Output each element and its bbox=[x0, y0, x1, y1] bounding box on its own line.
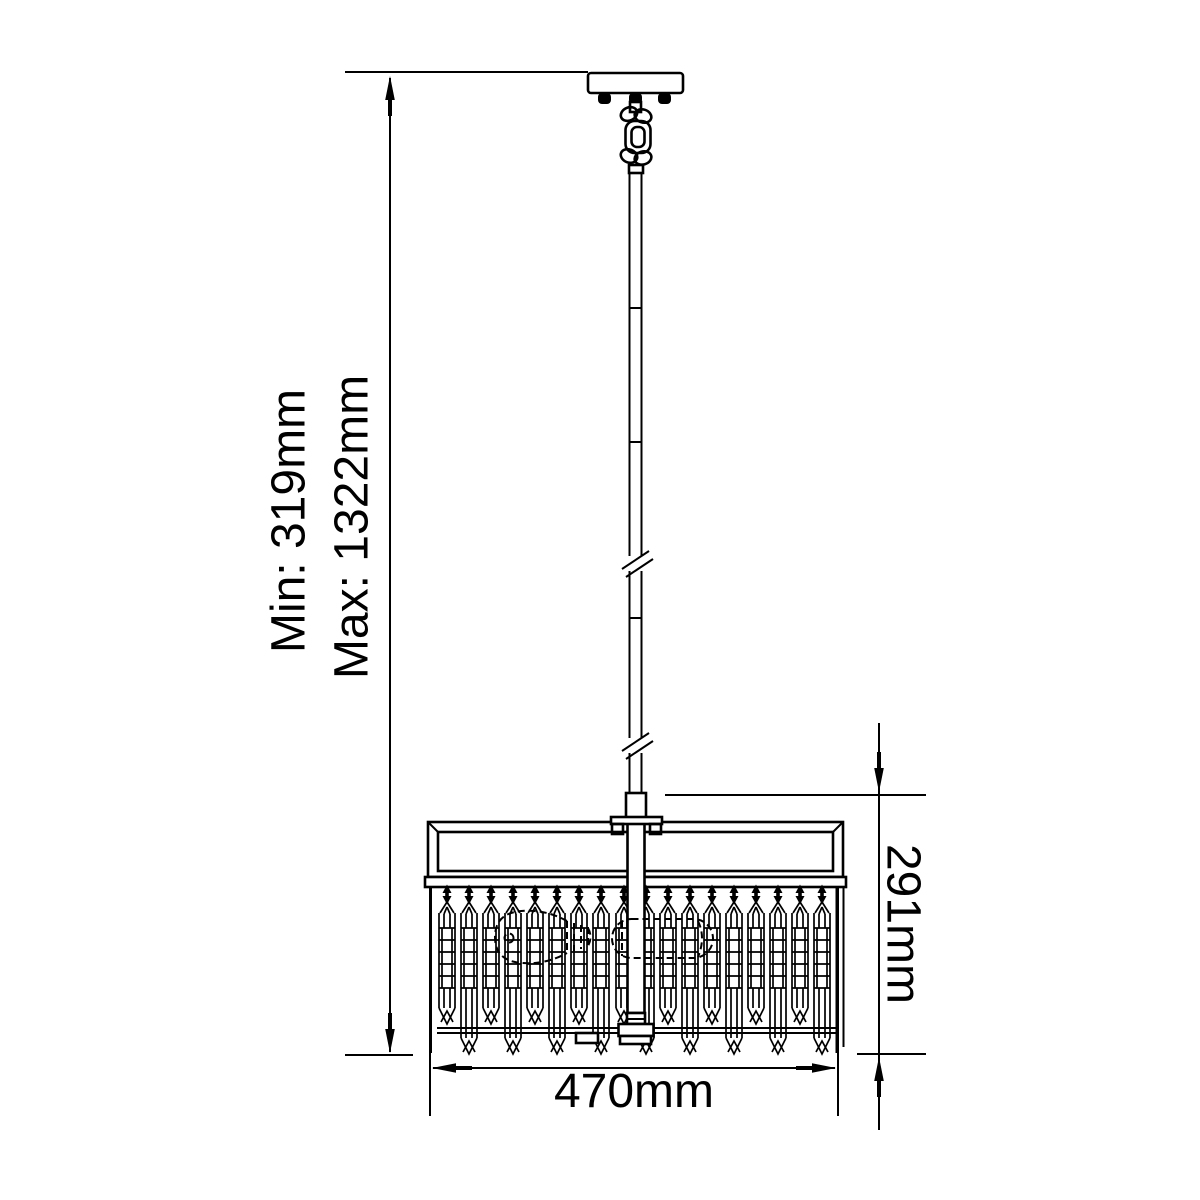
rod-break-mark bbox=[622, 551, 653, 577]
width-label: 470mm bbox=[554, 1065, 714, 1118]
arrow-right-icon bbox=[796, 1063, 836, 1073]
pendant-light-dimension-drawing: Min: 319mm Max: 1322mm 291mm 470mm bbox=[0, 0, 1200, 1200]
arrow-down-icon bbox=[874, 752, 884, 792]
suspension-rod bbox=[622, 173, 653, 819]
arrow-up-icon bbox=[385, 76, 395, 116]
suspension-chain bbox=[619, 105, 654, 173]
ceiling-canopy bbox=[588, 73, 683, 112]
body-height-label: 291mm bbox=[877, 844, 930, 1004]
arrow-up-icon bbox=[874, 1057, 884, 1097]
canopy-screw bbox=[658, 93, 671, 104]
bulb-filament-detail bbox=[505, 934, 514, 943]
arrow-left-icon bbox=[432, 1063, 472, 1073]
lamp-socket bbox=[620, 1036, 651, 1044]
canopy-screw bbox=[598, 93, 611, 104]
junction-box bbox=[576, 1033, 598, 1043]
socket-plate bbox=[619, 1024, 654, 1036]
max-height-label: Max: 1322mm bbox=[326, 375, 379, 679]
rod-coupler bbox=[626, 793, 646, 819]
arrow-down-icon bbox=[385, 1013, 395, 1053]
diagram-canvas: Min: 319mm Max: 1322mm 291mm 470mm bbox=[0, 0, 1200, 1200]
rod-break-mark bbox=[622, 733, 653, 759]
min-height-label: Min: 319mm bbox=[263, 389, 316, 653]
